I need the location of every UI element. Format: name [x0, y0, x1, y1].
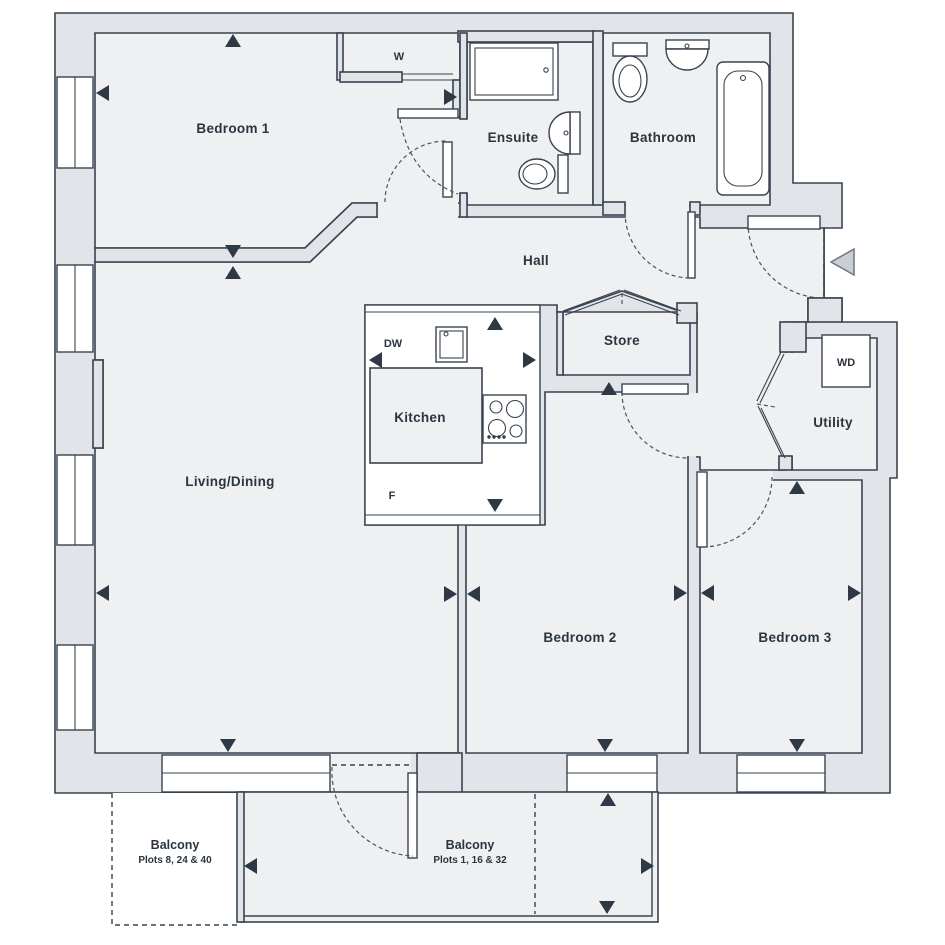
bathroom-door-leaf	[688, 212, 695, 278]
bedroom1-label: Bedroom 1	[196, 121, 269, 136]
window-left-4	[57, 645, 93, 730]
entry-door-leaf	[748, 216, 820, 229]
floor-plan-canvas: Bedroom 1 Ensuite Bathroom Hall Store Ki…	[0, 0, 945, 945]
window-living-bottom	[162, 755, 330, 792]
bedroom3-label: Bedroom 3	[758, 630, 831, 645]
bedroom1-doorway	[378, 202, 458, 218]
bedroom2-door-leaf	[622, 384, 688, 394]
wardrobe-label: W	[394, 51, 405, 63]
balcony-right-label: Balcony	[446, 838, 495, 852]
utility-nw-corner	[780, 322, 806, 352]
balcony-door-leaf	[408, 773, 417, 858]
window-left-2	[57, 265, 93, 352]
utility-label: Utility	[813, 415, 853, 430]
bedroom3-door-leaf	[697, 472, 707, 547]
dishwasher-label: DW	[384, 338, 403, 350]
utility-doorway	[785, 353, 794, 456]
living-dining-label: Living/Dining	[185, 474, 274, 489]
ensuite-door-leaf	[398, 109, 458, 118]
hall-label: Hall	[523, 253, 549, 268]
balcony-divider-wall	[237, 792, 244, 922]
bathroom-door-jamb-west	[603, 202, 625, 215]
wardrobe-bottom-wall	[340, 72, 402, 82]
shower-icon	[470, 43, 558, 100]
washer-dryer-label: WD	[837, 357, 855, 369]
bedroom3-doorway	[702, 471, 773, 481]
ensuite-doorway	[458, 119, 469, 193]
window-bedroom3	[737, 755, 825, 792]
ensuite-west-wall-lower	[460, 193, 467, 217]
bathroom-doorway	[626, 203, 689, 218]
balcony-door-east-block	[417, 753, 462, 793]
floor-plan: Bedroom 1 Ensuite Bathroom Hall Store Ki…	[0, 0, 945, 945]
left-wall-pier	[93, 360, 103, 448]
bathtub-icon	[717, 62, 769, 195]
window-bedroom2	[567, 755, 657, 792]
window-left-1	[57, 77, 93, 168]
ensuite-bathroom-divider	[593, 31, 603, 205]
balcony-left-label: Balcony	[151, 838, 200, 852]
bathroom-toilet-icon	[613, 43, 647, 102]
bedroom2-doorway	[687, 393, 699, 456]
store-corner-block	[677, 303, 697, 323]
ensuite-north-wall	[458, 31, 595, 42]
entrance-arrow-icon	[831, 249, 854, 275]
ensuite-label: Ensuite	[488, 130, 539, 145]
bathroom-label: Bathroom	[630, 130, 696, 145]
balcony-doorway	[331, 754, 411, 793]
store-west-wall	[557, 312, 563, 375]
fridge-label: F	[389, 490, 396, 502]
balcony-left-plots: Plots 8, 24 & 40	[138, 855, 212, 866]
bedroom2-label: Bedroom 2	[543, 630, 616, 645]
kitchen-sink-icon	[436, 327, 467, 362]
entry-corner-block	[808, 298, 842, 322]
balcony-right-plots: Plots 1, 16 & 32	[433, 855, 507, 866]
window-left-3	[57, 455, 93, 545]
ensuite-west-wall-upper	[460, 33, 467, 119]
store-label: Store	[604, 333, 640, 348]
hob-icon	[483, 395, 526, 443]
kitchen-label: Kitchen	[394, 410, 446, 425]
utility-sw-stub	[779, 456, 792, 470]
bedroom3-floor	[700, 480, 862, 753]
